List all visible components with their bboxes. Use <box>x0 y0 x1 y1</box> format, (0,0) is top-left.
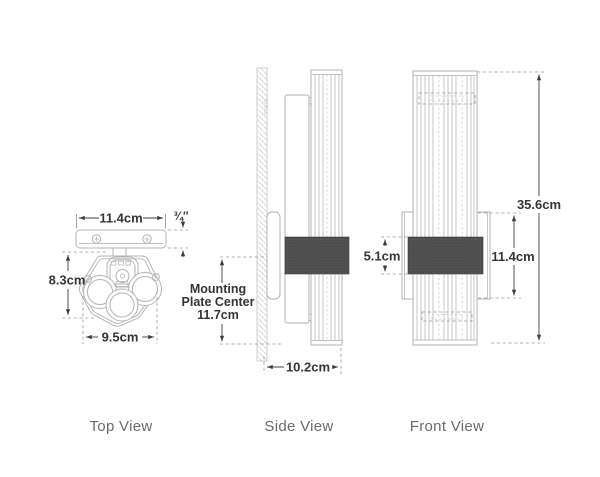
dim-head-depth-label: 8.3cm <box>49 273 86 288</box>
dim-mounting-line2: Plate Center <box>182 295 255 309</box>
front-view-glass-rods <box>413 71 477 345</box>
top-view-mounting-plate <box>76 230 166 248</box>
dim-mounting-line1: Mounting <box>190 282 246 296</box>
dim-projection-label: 10.2cm <box>286 360 330 375</box>
dim-head-width-label: 9.5cm <box>102 330 139 345</box>
dim-plate-width: 11.4cm <box>77 211 166 229</box>
side-view-glass-rods <box>311 70 342 345</box>
front-view: 5.1cm 11.4cm 35.6cm <box>364 71 561 345</box>
top-view: 11.4cm ¾″ 8.3cm 9.5cm <box>49 211 189 345</box>
dim-backplate-height-label: 11.4cm <box>491 249 534 264</box>
front-view-band <box>408 237 483 274</box>
wall-label: WALL <box>262 99 268 116</box>
dim-plate-thickness: ¾″ <box>168 211 189 257</box>
dim-overall-height-label: 35.6cm <box>517 197 561 212</box>
dimension-drawing: 11.4cm ¾″ 8.3cm 9.5cm WALL <box>0 0 600 477</box>
top-view-label: Top View <box>90 418 153 435</box>
dim-mounting-line3: 11.7cm <box>197 308 239 322</box>
side-view-label: Side View <box>264 418 333 435</box>
dim-plate-width-label: 11.4cm <box>99 211 142 226</box>
side-view-canopy <box>267 212 280 299</box>
dim-band-height-label: 5.1cm <box>364 249 401 264</box>
top-view-head <box>79 256 161 326</box>
dim-plate-thickness-label: ¾″ <box>173 211 189 223</box>
dim-overall-height: 35.6cm <box>477 72 561 343</box>
front-view-label: Front View <box>410 418 484 435</box>
drawing-canvas: 11.4cm ¾″ 8.3cm 9.5cm WALL <box>0 0 600 477</box>
lens-circle-bottom <box>106 289 138 321</box>
side-view: WALL Mounting <box>182 68 349 375</box>
dim-projection: 10.2cm <box>264 348 341 375</box>
side-view-band <box>285 237 349 274</box>
